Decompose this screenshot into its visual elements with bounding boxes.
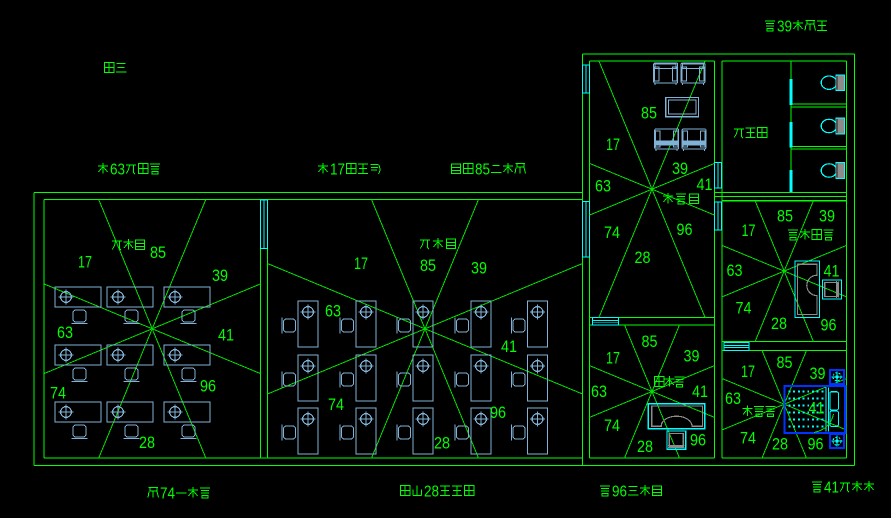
svg-text:85: 85 — [777, 353, 793, 372]
svg-text:28: 28 — [637, 437, 653, 456]
svg-text:39: 39 — [672, 159, 688, 178]
svg-text:74: 74 — [328, 395, 344, 414]
svg-text:41: 41 — [501, 337, 517, 356]
svg-text:39: 39 — [819, 207, 835, 226]
svg-text:39: 39 — [684, 347, 700, 366]
svg-text:39: 39 — [471, 259, 487, 278]
svg-text:28: 28 — [772, 435, 788, 454]
svg-text:74: 74 — [740, 429, 756, 448]
svg-text:63: 63 — [727, 261, 743, 280]
svg-text:41: 41 — [824, 480, 839, 497]
svg-text:85: 85 — [150, 243, 166, 262]
svg-text:74: 74 — [604, 416, 620, 435]
svg-text:17: 17 — [78, 253, 92, 272]
svg-text:63: 63 — [325, 302, 341, 321]
svg-text:41: 41 — [824, 262, 840, 281]
svg-text:85: 85 — [777, 207, 793, 226]
svg-text:74: 74 — [50, 384, 66, 403]
svg-text:28: 28 — [434, 434, 450, 453]
svg-text:28: 28 — [771, 314, 787, 333]
svg-text:96: 96 — [821, 316, 837, 335]
svg-text:28: 28 — [635, 248, 651, 267]
svg-text:17: 17 — [606, 135, 620, 154]
svg-text:63: 63 — [110, 162, 125, 179]
svg-text:85: 85 — [475, 162, 490, 179]
svg-text:74: 74 — [604, 223, 620, 242]
svg-text:74: 74 — [160, 486, 175, 503]
svg-text:96: 96 — [690, 431, 706, 450]
svg-text:63: 63 — [591, 382, 607, 401]
svg-text:96: 96 — [490, 403, 506, 422]
svg-text:96: 96 — [200, 377, 216, 396]
svg-text:17: 17 — [742, 221, 756, 240]
svg-text:63: 63 — [725, 389, 741, 408]
svg-text:63: 63 — [595, 177, 611, 196]
svg-text:17: 17 — [354, 254, 368, 273]
svg-text:41: 41 — [692, 382, 708, 401]
svg-text:17: 17 — [330, 162, 345, 179]
svg-text:74: 74 — [736, 299, 752, 318]
svg-text:63: 63 — [57, 323, 73, 342]
svg-text:39: 39 — [810, 364, 826, 383]
svg-text:17: 17 — [741, 362, 755, 381]
svg-text:96: 96 — [677, 220, 693, 239]
svg-text:41: 41 — [809, 399, 825, 418]
svg-text:96: 96 — [612, 484, 627, 501]
svg-text:41: 41 — [697, 175, 713, 194]
svg-text:17: 17 — [606, 349, 620, 368]
svg-text:85: 85 — [641, 104, 657, 123]
svg-text:28: 28 — [139, 433, 155, 452]
svg-text:28: 28 — [424, 484, 439, 501]
svg-text:85: 85 — [642, 332, 658, 351]
svg-text:85: 85 — [420, 256, 436, 275]
svg-text:41: 41 — [218, 326, 234, 345]
svg-text:96: 96 — [808, 435, 824, 454]
svg-text:39: 39 — [212, 266, 228, 285]
svg-text:39: 39 — [777, 19, 792, 36]
